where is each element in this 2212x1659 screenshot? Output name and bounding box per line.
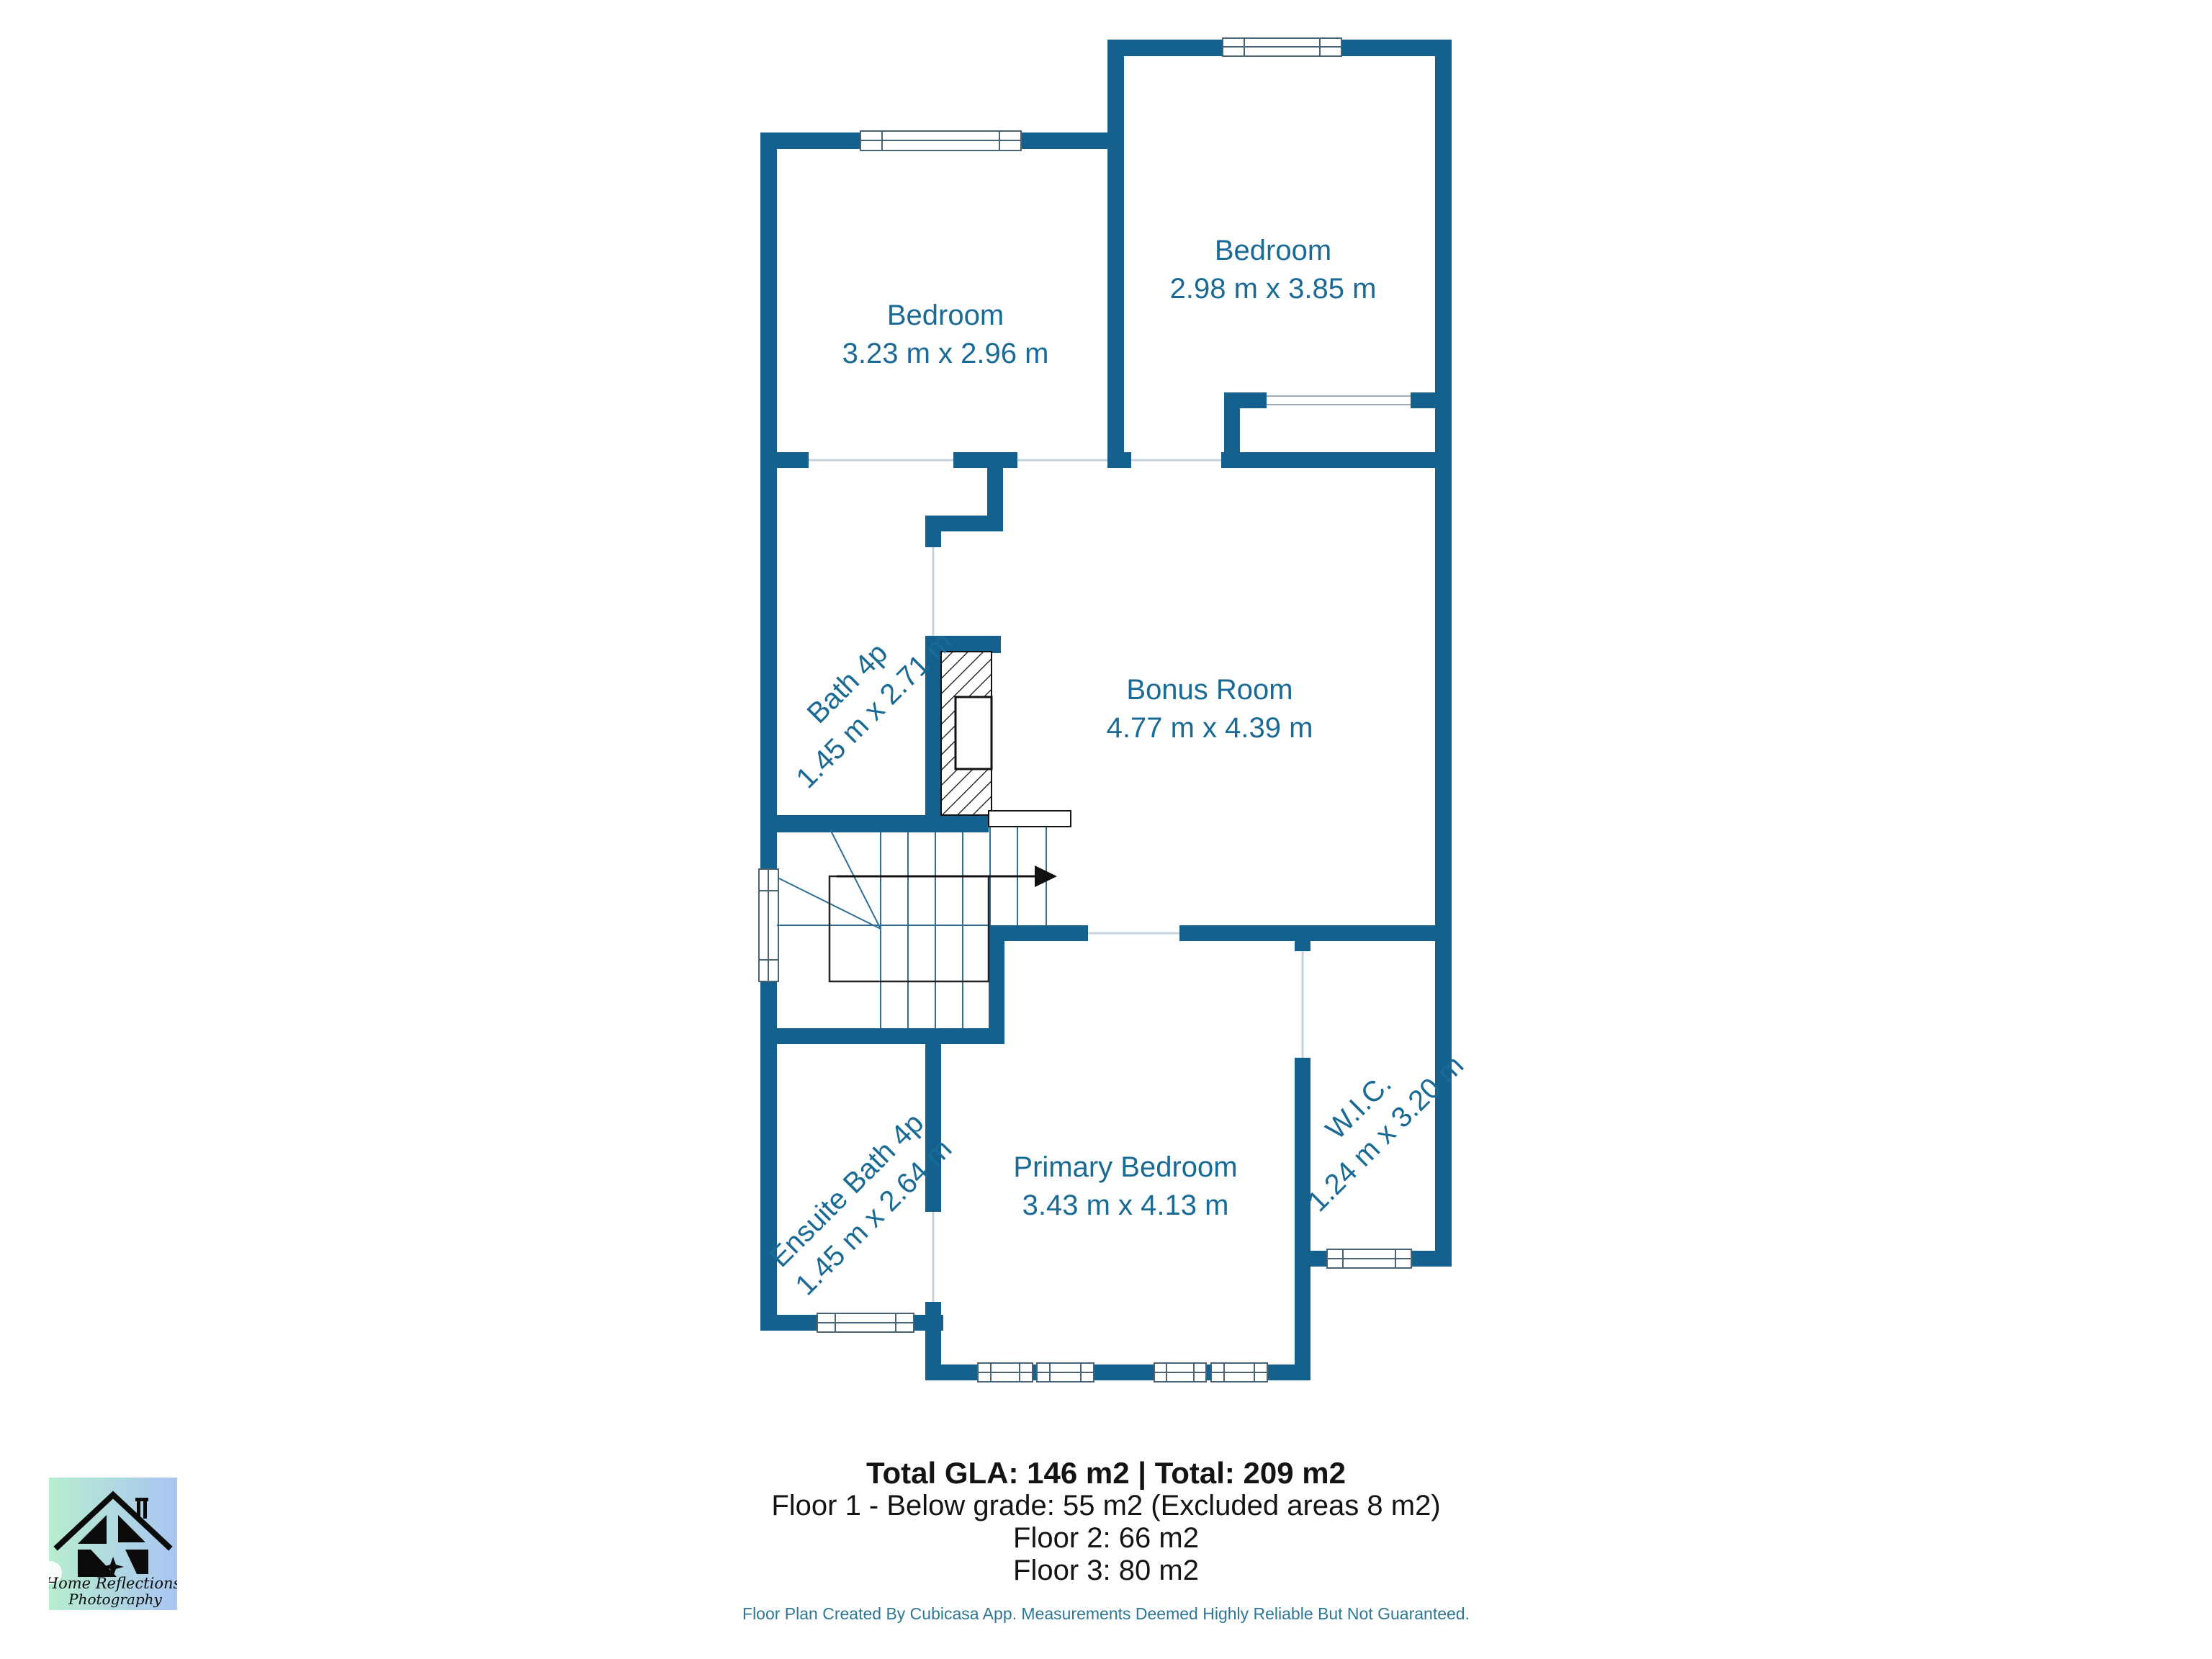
room-name: Bedroom <box>887 300 1004 331</box>
stair-direction-arrow <box>837 866 1057 887</box>
floor1-line: Floor 1 - Below grade: 55 m2 (Excluded a… <box>0 1490 2212 1522</box>
staircase <box>777 811 1071 1028</box>
fireplace-hatch <box>941 652 992 815</box>
window-stairs <box>759 869 778 981</box>
room-label-bedroom-right: Bedroom 2.98 m x 3.85 m <box>1170 232 1377 308</box>
window-primary-1 <box>978 1363 1033 1382</box>
photography-logo: Home Reflections Photography <box>49 1478 177 1610</box>
logo-text-line2: Photography <box>68 1591 162 1608</box>
room-label-bedroom-left: Bedroom 3.23 m x 2.96 m <box>842 297 1049 373</box>
room-dimensions: 2.98 m x 3.85 m <box>1170 270 1377 308</box>
room-name: Bedroom <box>1215 235 1331 266</box>
disclaimer-text: Floor Plan Created By Cubicasa App. Meas… <box>0 1604 2212 1624</box>
logo-text-line1: Home Reflections <box>49 1575 177 1592</box>
room-dimensions: 3.43 m x 4.13 m <box>1013 1187 1237 1225</box>
room-dimensions: 4.77 m x 4.39 m <box>1107 709 1313 747</box>
room-name: Bonus Room <box>1126 674 1292 706</box>
area-summary: Total GLA: 146 m2 | Total: 209 m2 Floor … <box>0 1456 2212 1587</box>
room-label-bonus-room: Bonus Room 4.77 m x 4.39 m <box>1107 671 1313 747</box>
window-primary-3 <box>1154 1363 1206 1382</box>
total-gla-line: Total GLA: 146 m2 | Total: 209 m2 <box>0 1456 2212 1490</box>
window-bedroom-right <box>1223 38 1341 56</box>
floor2-line: Floor 2: 66 m2 <box>0 1522 2212 1555</box>
window-primary-2 <box>1037 1363 1094 1382</box>
window-primary-4 <box>1211 1363 1267 1382</box>
floor3-line: Floor 3: 80 m2 <box>0 1555 2212 1587</box>
room-dimensions: 3.23 m x 2.96 m <box>842 335 1049 373</box>
window-bedroom-left <box>860 131 1021 150</box>
floor-plan-drawing <box>0 0 2212 1659</box>
room-name: Primary Bedroom <box>1013 1151 1237 1183</box>
closet-sliding-door <box>1267 396 1411 405</box>
window-wic <box>1327 1249 1411 1268</box>
stairwell-void-outline <box>829 876 989 981</box>
floor-plan-page: Bedroom 3.23 m x 2.96 m Bedroom 2.98 m x… <box>0 0 2212 1659</box>
window-ensuite <box>817 1313 914 1332</box>
stair-railing <box>989 811 1071 827</box>
room-label-primary-bedroom: Primary Bedroom 3.43 m x 4.13 m <box>1013 1148 1237 1225</box>
